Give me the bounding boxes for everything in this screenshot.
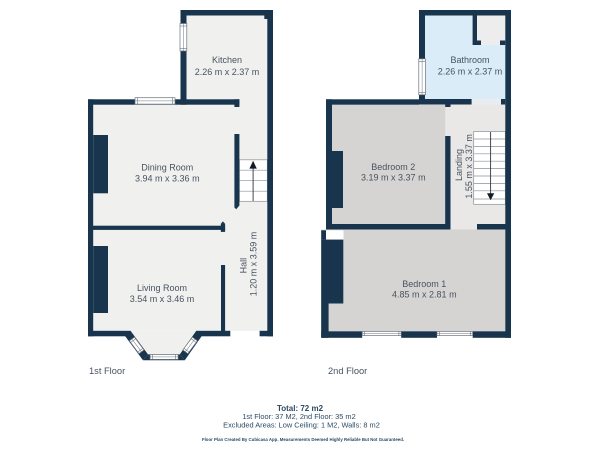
svg-text:4.85 m x 2.81 m: 4.85 m x 2.81 m bbox=[392, 290, 457, 300]
svg-text:Floor Plan Created By Cubicasa: Floor Plan Created By Cubicasa App. Meas… bbox=[202, 437, 404, 442]
svg-text:3.19 m x 3.37 m: 3.19 m x 3.37 m bbox=[361, 173, 426, 183]
svg-text:1.55 m x 3.37 m: 1.55 m x 3.37 m bbox=[464, 134, 474, 199]
svg-text:Landing: Landing bbox=[454, 149, 464, 181]
svg-text:Bathroom: Bathroom bbox=[450, 55, 489, 65]
svg-text:Bedroom 1: Bedroom 1 bbox=[402, 279, 446, 289]
svg-text:Living Room: Living Room bbox=[137, 283, 187, 293]
svg-text:Hall: Hall bbox=[238, 258, 248, 274]
svg-text:2.26 m x 2.37 m: 2.26 m x 2.37 m bbox=[438, 67, 503, 77]
svg-text:2.26 m x 2.37 m: 2.26 m x 2.37 m bbox=[195, 67, 260, 77]
svg-text:3.54 m x 3.46 m: 3.54 m x 3.46 m bbox=[130, 294, 195, 304]
svg-text:3.94 m x 3.36 m: 3.94 m x 3.36 m bbox=[135, 174, 200, 184]
svg-text:1.20 m x 3.59 m: 1.20 m x 3.59 m bbox=[249, 232, 259, 297]
svg-text:Excluded Areas: Low Ceiling: 1: Excluded Areas: Low Ceiling: 1 M2, Walls… bbox=[223, 421, 380, 430]
svg-text:2nd Floor: 2nd Floor bbox=[328, 366, 367, 376]
svg-text:Kitchen: Kitchen bbox=[212, 55, 242, 65]
svg-text:1st Floor: 1st Floor bbox=[89, 366, 125, 376]
svg-text:Bedroom 2: Bedroom 2 bbox=[371, 162, 415, 172]
svg-text:Dining Room: Dining Room bbox=[141, 163, 193, 173]
